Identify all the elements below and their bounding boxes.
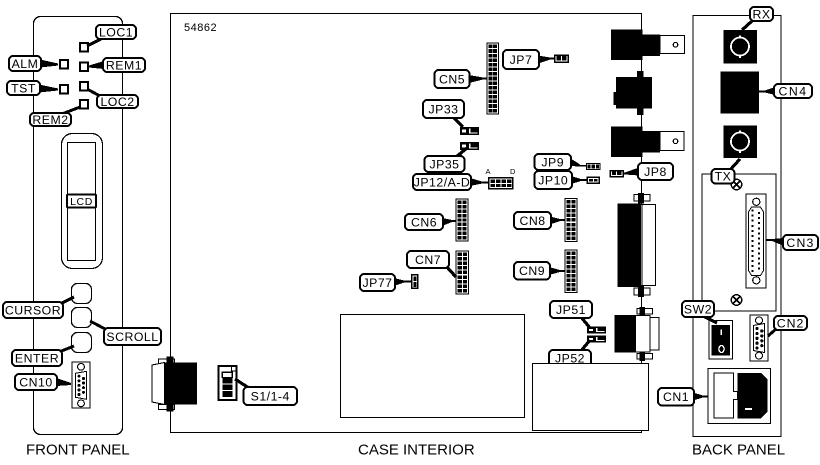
svg-text:REM1: REM1 [106,58,142,72]
svg-text:CN6: CN6 [411,215,437,229]
svg-text:ENTER: ENTER [15,351,59,365]
svg-text:A: A [486,167,491,176]
svg-text:CN9: CN9 [519,264,545,278]
svg-text:CN3: CN3 [786,236,814,250]
svg-text:JP33: JP33 [428,102,458,116]
svg-text:LCD: LCD [70,196,93,208]
svg-text:BACK PANEL: BACK PANEL [692,442,785,459]
svg-text:REM2: REM2 [32,113,68,127]
svg-text:FRONT PANEL: FRONT PANEL [26,442,130,459]
svg-text:CASE INTERIOR: CASE INTERIOR [358,442,475,459]
svg-text:JP12/A-D: JP12/A-D [414,175,471,189]
svg-text:JP7: JP7 [510,53,533,67]
svg-text:CN7: CN7 [415,253,441,267]
svg-text:CN2: CN2 [777,316,805,330]
svg-text:JP51: JP51 [556,303,586,317]
svg-text:JP9: JP9 [541,155,564,169]
svg-text:CN1: CN1 [663,390,689,404]
svg-text:RX: RX [752,7,770,21]
svg-text:JP77: JP77 [362,276,392,290]
svg-text:JP8: JP8 [644,165,667,179]
svg-text:CURSOR: CURSOR [5,303,61,317]
svg-text:54862: 54862 [184,22,217,34]
svg-text:LOC1: LOC1 [99,25,133,39]
svg-text:D: D [510,167,516,176]
svg-text:CN10: CN10 [19,375,52,389]
svg-text:TST: TST [11,81,36,95]
svg-text:CN8: CN8 [519,214,545,228]
svg-text:SCROLL: SCROLL [106,330,158,344]
svg-text:TX: TX [715,170,732,184]
svg-text:CN5: CN5 [439,72,465,86]
svg-text:LOC2: LOC2 [100,95,134,109]
svg-text:S1/1-4: S1/1-4 [251,389,290,403]
svg-text:JP35: JP35 [429,157,459,171]
svg-text:CN4: CN4 [778,84,807,98]
svg-text:JP10: JP10 [538,173,568,187]
svg-text:SW2: SW2 [684,302,712,316]
svg-text:ALM: ALM [12,57,39,71]
